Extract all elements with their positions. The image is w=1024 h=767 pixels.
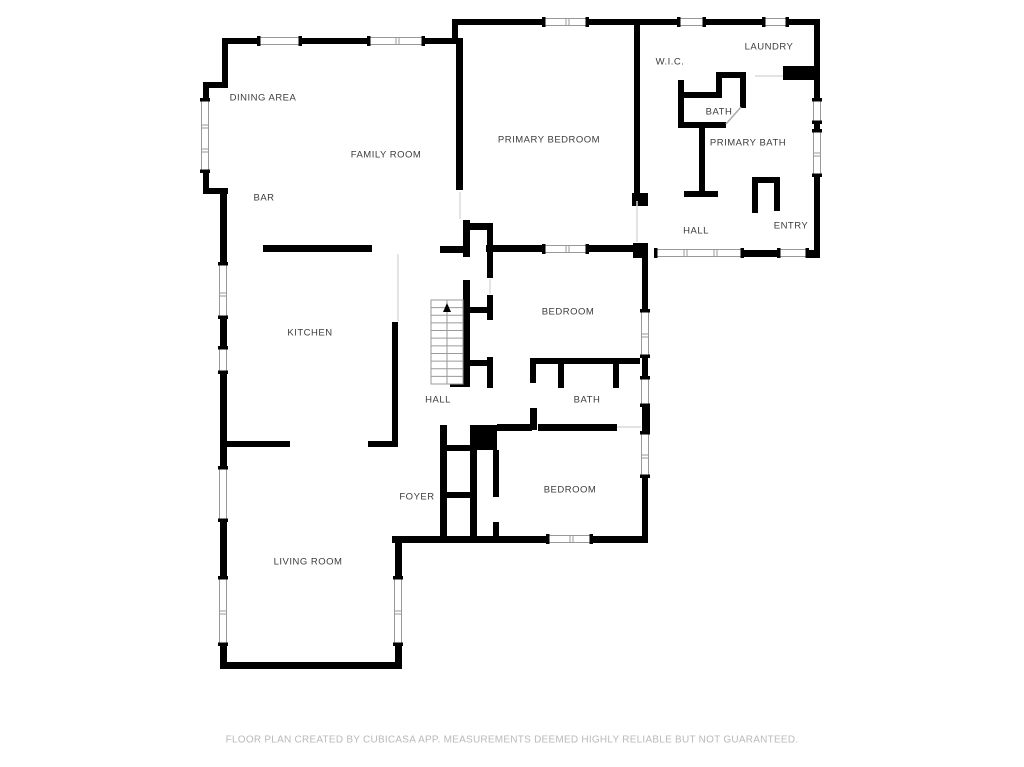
- disclaimer-text: FLOOR PLAN CREATED BY CUBICASA APP. MEAS…: [226, 735, 799, 746]
- floor-plan-canvas: DINING AREAFAMILY ROOMBARPRIMARY BEDROOM…: [0, 0, 1024, 767]
- floor-plan-drawing: [0, 0, 1024, 767]
